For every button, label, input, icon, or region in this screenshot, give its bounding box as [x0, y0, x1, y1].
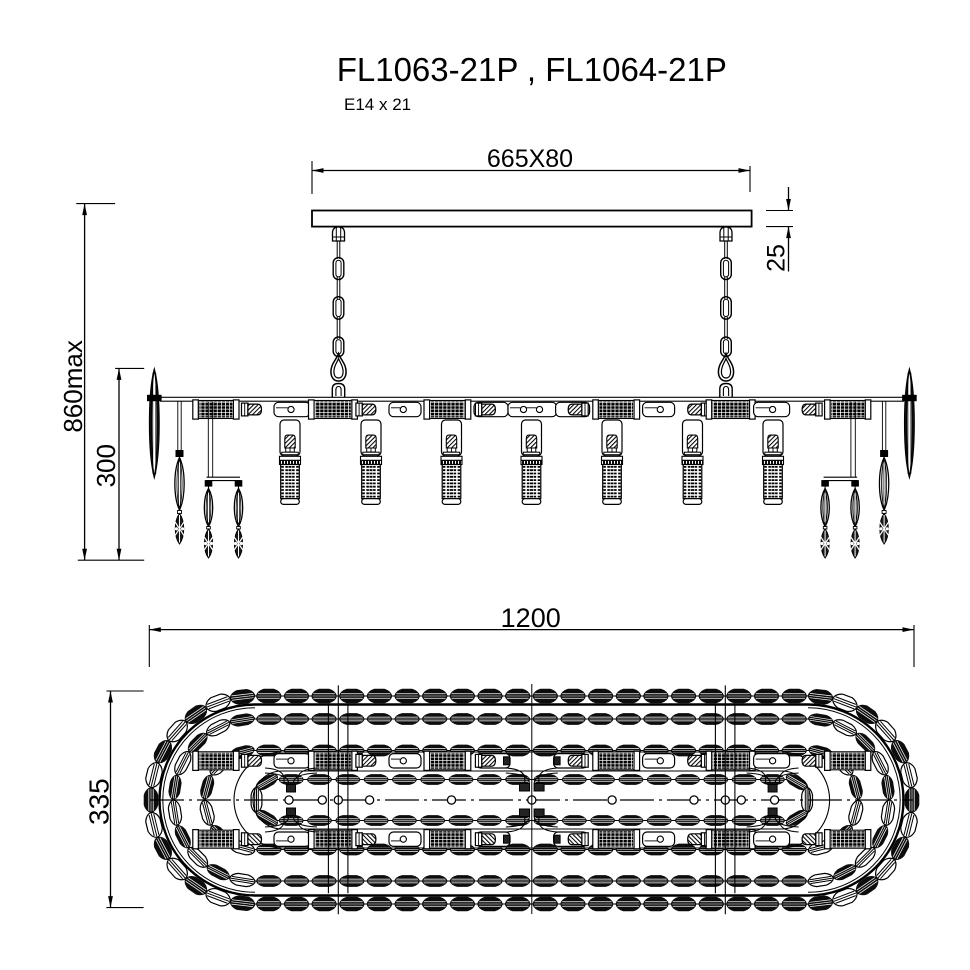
svg-text:665X80: 665X80 [487, 145, 573, 173]
svg-text:300: 300 [91, 444, 121, 487]
svg-text:25: 25 [763, 244, 791, 272]
svg-text:1200: 1200 [501, 603, 561, 633]
svg-text:FL1063-21P , FL1064-21P: FL1063-21P , FL1064-21P [337, 51, 727, 88]
svg-text:335: 335 [84, 778, 115, 825]
svg-text:860max: 860max [58, 340, 88, 433]
svg-text:E14 x 21: E14 x 21 [344, 95, 411, 114]
